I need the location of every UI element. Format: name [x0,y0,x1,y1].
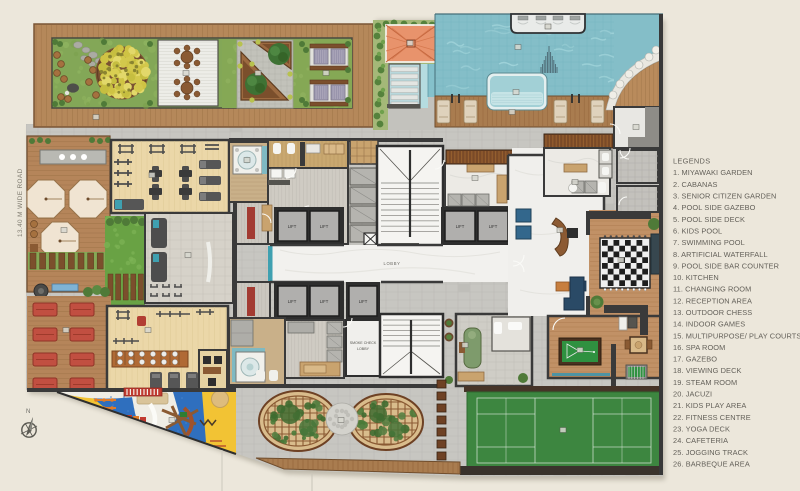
svg-text:SMOKE CHECK: SMOKE CHECK [350,341,377,345]
svg-text:13. OUTDOOR CHESS: 13. OUTDOOR CHESS [673,308,752,317]
svg-text:LEGENDS: LEGENDS [673,157,710,166]
svg-text:26. BARBEQUE AREA: 26. BARBEQUE AREA [673,459,750,468]
svg-text:N: N [26,409,30,415]
svg-text:5. POOL SIDE DECK: 5. POOL SIDE DECK [673,215,745,224]
svg-text:LOBBY: LOBBY [384,261,401,266]
svg-text:12. RECEPTION AREA: 12. RECEPTION AREA [673,296,752,305]
svg-text:18. VIEWING DECK: 18. VIEWING DECK [673,366,742,375]
svg-text:22. FITNESS CENTRE: 22. FITNESS CENTRE [673,413,751,422]
svg-text:25. JOGGING TRACK: 25. JOGGING TRACK [673,448,748,457]
svg-text:13.40 M WIDE ROAD: 13.40 M WIDE ROAD [17,168,24,237]
svg-text:3. SENIOR CITIZEN GARDEN: 3. SENIOR CITIZEN GARDEN [673,192,776,201]
svg-text:10. KITCHEN: 10. KITCHEN [673,273,719,282]
svg-text:20. JACUZI: 20. JACUZI [673,390,712,399]
svg-text:LOBBY: LOBBY [357,347,370,351]
svg-text:LIFT: LIFT [288,299,297,304]
svg-text:LIFT: LIFT [320,224,329,229]
svg-text:LIFT: LIFT [359,299,368,304]
svg-text:11. CHANGING ROOM: 11. CHANGING ROOM [673,285,751,294]
svg-text:LIFT: LIFT [489,224,498,229]
svg-text:8. ARTIFICIAL WATERFALL: 8. ARTIFICIAL WATERFALL [673,250,768,259]
svg-text:1. MIYAWAKI GARDEN: 1. MIYAWAKI GARDEN [673,168,753,177]
svg-text:19. STEAM ROOM: 19. STEAM ROOM [673,378,737,387]
svg-text:15. MULTIPURPOSE/ PLAY COURTS: 15. MULTIPURPOSE/ PLAY COURTS [673,331,800,340]
svg-text:2. CABANAS: 2. CABANAS [673,180,718,189]
svg-text:14. INDOOR GAMES: 14. INDOOR GAMES [673,320,745,329]
svg-text:7. SWIMMING POOL: 7. SWIMMING POOL [673,238,745,247]
svg-text:6. KIDS POOL: 6. KIDS POOL [673,226,722,235]
svg-text:17. GAZEBO: 17. GAZEBO [673,355,717,364]
svg-text:9. POOL SIDE BAR COUNTER: 9. POOL SIDE BAR COUNTER [673,261,779,270]
svg-text:LIFT: LIFT [456,224,465,229]
svg-text:21. KIDS PLAY AREA: 21. KIDS PLAY AREA [673,401,746,410]
svg-text:24. CAFETERIA: 24. CAFETERIA [673,436,728,445]
svg-text:16. SPA ROOM: 16. SPA ROOM [673,343,725,352]
svg-text:LIFT: LIFT [320,299,329,304]
svg-text:4. POOL SIDE GAZEBO: 4. POOL SIDE GAZEBO [673,203,756,212]
svg-text:LIFT: LIFT [288,224,297,229]
svg-text:23. YOGA DECK: 23. YOGA DECK [673,425,730,434]
